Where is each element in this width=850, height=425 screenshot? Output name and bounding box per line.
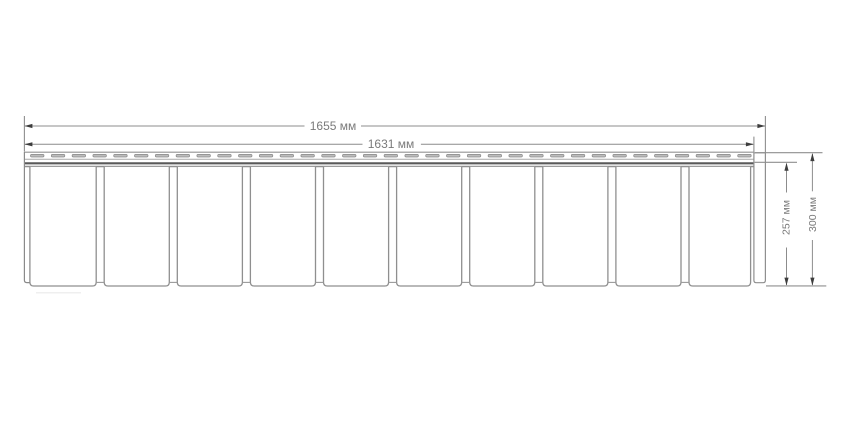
svg-text:257 мм: 257 мм: [781, 200, 793, 235]
svg-text:1655 мм: 1655 мм: [310, 119, 357, 133]
svg-text:300 мм: 300 мм: [807, 197, 819, 232]
svg-text:1631 мм: 1631 мм: [368, 137, 415, 151]
